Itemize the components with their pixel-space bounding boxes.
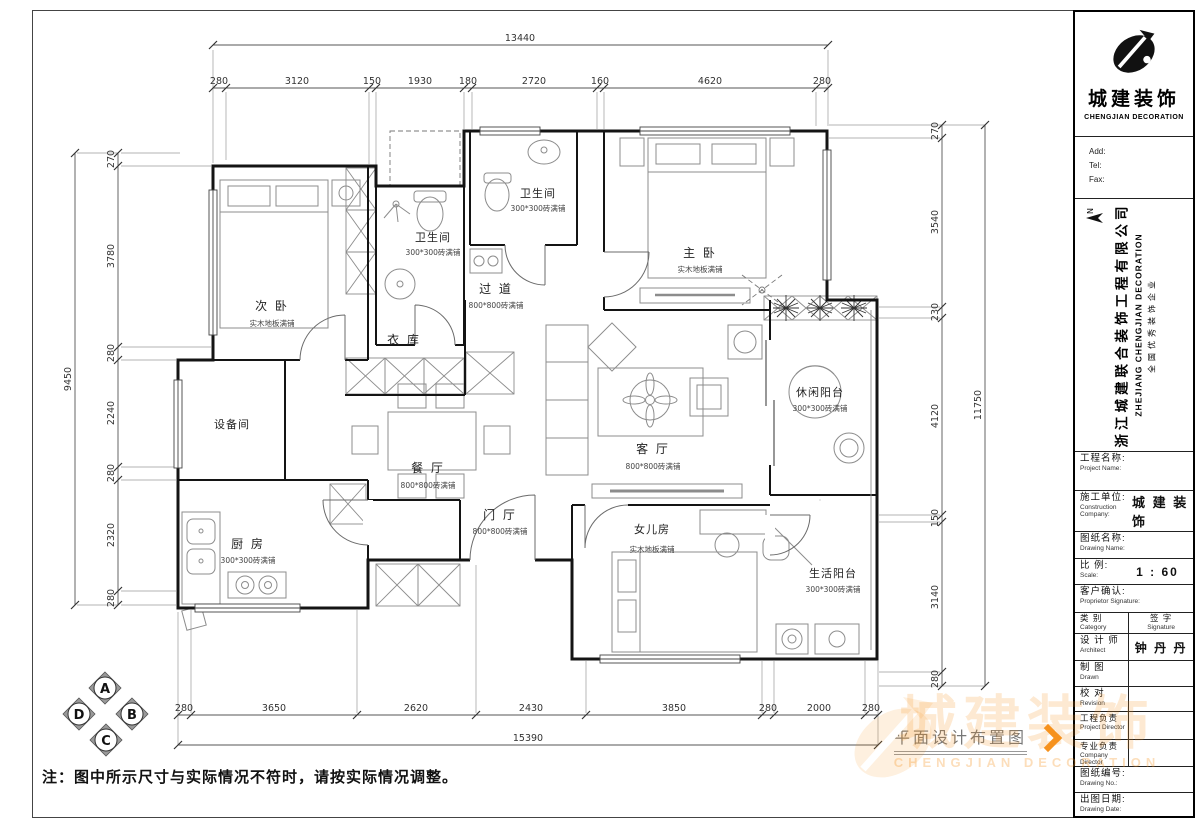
room-finish: 300*300砖满铺 <box>793 403 848 413</box>
dim-label: 280 <box>106 344 117 362</box>
dim-label: 160 <box>591 76 609 87</box>
field-drawing-date: 出图日期: Drawing Date: <box>1075 793 1193 820</box>
room-finish: 实木地板满铺 <box>250 318 295 328</box>
field-construction-company: 施工单位: Construction Company: 城 建 装 饰 <box>1075 491 1193 532</box>
dim-label: 270 <box>930 122 941 140</box>
dim-label: 280 <box>106 589 117 607</box>
extension-lines <box>77 50 985 745</box>
contact-block: Add: Tel: Fax: <box>1075 137 1193 199</box>
brand-name-en: CHENGJIAN DECORATION <box>1084 114 1184 121</box>
dim-label: 230 <box>930 303 941 321</box>
dim-label: 3780 <box>106 244 117 268</box>
caption-underline <box>894 754 1027 755</box>
dim-label: 2430 <box>519 703 543 714</box>
dimension-labels: 13440 280 3120 150 1930 180 2720 160 462… <box>63 33 984 744</box>
dim-label: 150 <box>363 76 381 87</box>
dim-label: 3140 <box>930 585 941 609</box>
company-logo-icon <box>1105 28 1163 80</box>
room-label: 门 厅 <box>483 507 517 522</box>
marker-b: B <box>127 708 137 723</box>
room-finish: 300*300砖满铺 <box>221 555 276 565</box>
dim-label: 3540 <box>930 210 941 234</box>
dim-total-left: 9450 <box>63 367 74 391</box>
dim-label: 2000 <box>807 703 831 714</box>
header-category-signature: 类 别 Category 签 字 Signature <box>1075 613 1193 634</box>
field-project-director: 工程负责 Project Director <box>1075 712 1193 740</box>
room-label: 休闲阳台 <box>796 385 844 399</box>
room-finish: 800*800砖满铺 <box>626 461 681 471</box>
room-label: 卫生间 <box>415 230 451 244</box>
room-finish: 300*300砖满铺 <box>406 247 461 257</box>
room-label: 餐 厅 <box>411 460 445 475</box>
dim-label: 280 <box>106 464 117 482</box>
room-label: 次 卧 <box>255 299 289 313</box>
room-finish: 300*300砖满铺 <box>511 203 566 213</box>
field-drawing-name: 图纸名称: Drawing Name: <box>1075 532 1193 559</box>
field-drawn: 制 图 Drawn <box>1075 661 1193 687</box>
dim-label: 2720 <box>522 76 546 87</box>
dim-total-top: 13440 <box>505 33 535 44</box>
title-block: 城建装饰 CHENGJIAN DECORATION Add: Tel: Fax:… <box>1073 10 1195 818</box>
contact-fax: Fax: <box>1089 173 1193 187</box>
field-architect: 设 计 师 Architect 钟 丹 丹 <box>1075 634 1193 661</box>
room-label: 主 卧 <box>683 246 717 260</box>
door-gaps <box>300 240 775 565</box>
room-label: 过 道 <box>479 282 513 296</box>
field-revision: 校 对 Revision <box>1075 687 1193 712</box>
dim-label: 280 <box>210 76 228 87</box>
construction-company-value: 城 建 装 饰 <box>1132 492 1193 530</box>
dim-label: 280 <box>862 703 880 714</box>
dashed-lines <box>390 131 782 305</box>
room-label: 卫生间 <box>520 186 556 200</box>
marker-c: C <box>101 734 111 749</box>
dim-label: 3850 <box>662 703 686 714</box>
dim-label: 280 <box>759 703 777 714</box>
brand-name-cn: 城建装饰 <box>1088 84 1180 111</box>
company-name-en: ZHEJIANG CHENGJIAN DECORATION <box>1134 203 1144 448</box>
field-proprietor: 客户确认: Proprietor Signature: <box>1075 585 1193 613</box>
floor-plan: 13440 280 3120 150 1930 180 2720 160 462… <box>0 0 1200 829</box>
room-finish: 800*800砖满铺 <box>401 480 456 490</box>
architect-name: 钟 丹 丹 <box>1135 639 1188 656</box>
room-finish: 300*300砖满铺 <box>806 584 861 594</box>
marker-d: D <box>74 708 85 723</box>
dimension-lines <box>75 45 985 745</box>
dim-label: 280 <box>175 703 193 714</box>
room-finish: 800*800砖满铺 <box>469 300 524 310</box>
field-scale: 比 例: Scale: 1 : 60 <box>1075 559 1193 585</box>
room-label: 厨 房 <box>231 536 265 551</box>
drawing-caption: 平面设计布置图 <box>894 724 1027 755</box>
field-company-director: 专业负责 Company Director <box>1075 740 1193 767</box>
dim-label: 4120 <box>930 404 941 428</box>
room-finish: 实木地板满铺 <box>678 264 723 274</box>
dim-label: 3120 <box>285 76 309 87</box>
contact-tel: Tel: <box>1089 159 1193 173</box>
contact-add: Add: <box>1089 145 1193 159</box>
company-block: N 浙江城建联合装饰工程有限公司 ZHEJIANG CHENGJIAN DECO… <box>1075 199 1193 452</box>
scale-value: 1 : 60 <box>1136 565 1179 579</box>
dim-total-right: 11750 <box>973 390 984 420</box>
room-finish: 实木地板满铺 <box>630 544 675 554</box>
drawing-sheet: 13440 280 3120 150 1930 180 2720 160 462… <box>0 0 1200 829</box>
dimension-ticks <box>71 41 989 749</box>
room-label: 设备间 <box>214 417 250 431</box>
north-label: N <box>1086 208 1095 214</box>
company-name-cn: 浙江城建联合装饰工程有限公司 <box>1111 203 1131 448</box>
marker-a: A <box>100 682 110 697</box>
dim-label: 2620 <box>404 703 428 714</box>
room-finish: 800*800砖满铺 <box>473 526 528 536</box>
brand-header: 城建装饰 CHENGJIAN DECORATION <box>1075 12 1193 137</box>
elevation-marker: A B C D <box>63 672 148 756</box>
company-slogan: 全国优秀装饰企业 <box>1147 203 1158 448</box>
dim-label: 180 <box>459 76 477 87</box>
dim-label: 2320 <box>106 523 117 547</box>
dim-label: 4620 <box>698 76 722 87</box>
dim-label: 3650 <box>262 703 286 714</box>
note-text: 注：图中所示尺寸与实际情况不符时，请按实际情况调整。 <box>42 766 458 787</box>
room-label: 客 厅 <box>636 441 670 456</box>
dim-label: 270 <box>106 150 117 168</box>
north-arrow-icon: N <box>1083 205 1109 231</box>
dim-label: 150 <box>930 509 941 527</box>
room-label: 衣 库 <box>387 332 421 347</box>
field-project-name: 工程名称: Project Name: <box>1075 452 1193 491</box>
dim-label: 2240 <box>106 401 117 425</box>
dim-label: 280 <box>813 76 831 87</box>
dim-total-bottom: 15390 <box>513 733 543 744</box>
field-drawing-no: 图纸编号: Drawing No.: <box>1075 767 1193 793</box>
room-label: 女儿房 <box>634 522 670 536</box>
room-label: 生活阳台 <box>809 566 857 580</box>
dim-label: 280 <box>930 670 941 688</box>
dim-label: 1930 <box>408 76 432 87</box>
